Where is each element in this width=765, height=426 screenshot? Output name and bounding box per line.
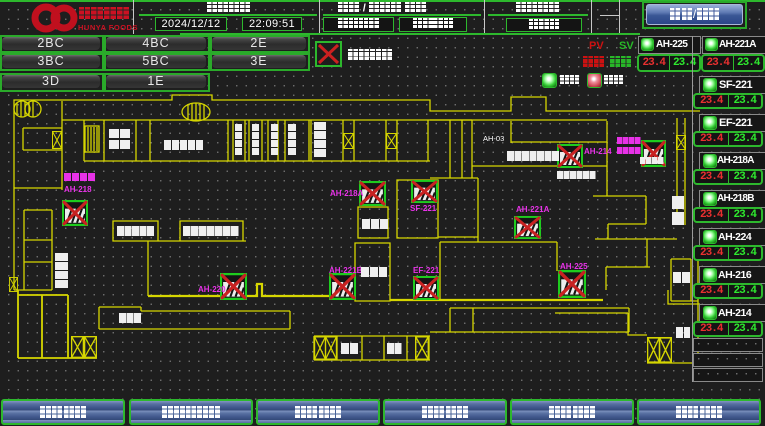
svg-text:AH-03: AH-03 [483, 134, 504, 143]
svg-text:SF-221: SF-221 [410, 204, 437, 213]
svg-text:AH-221A: AH-221A [516, 205, 550, 214]
svg-text:EF-221: EF-221 [413, 266, 440, 275]
svg-text:AH-214: AH-214 [584, 147, 612, 156]
svg-text:AH-218A: AH-218A [330, 189, 364, 198]
svg-text:AH-221B: AH-221B [329, 266, 363, 275]
svg-text:AH-225: AH-225 [560, 262, 588, 271]
svg-text:AH-220: AH-220 [198, 285, 226, 294]
svg-text:AH-218: AH-218 [64, 185, 92, 194]
